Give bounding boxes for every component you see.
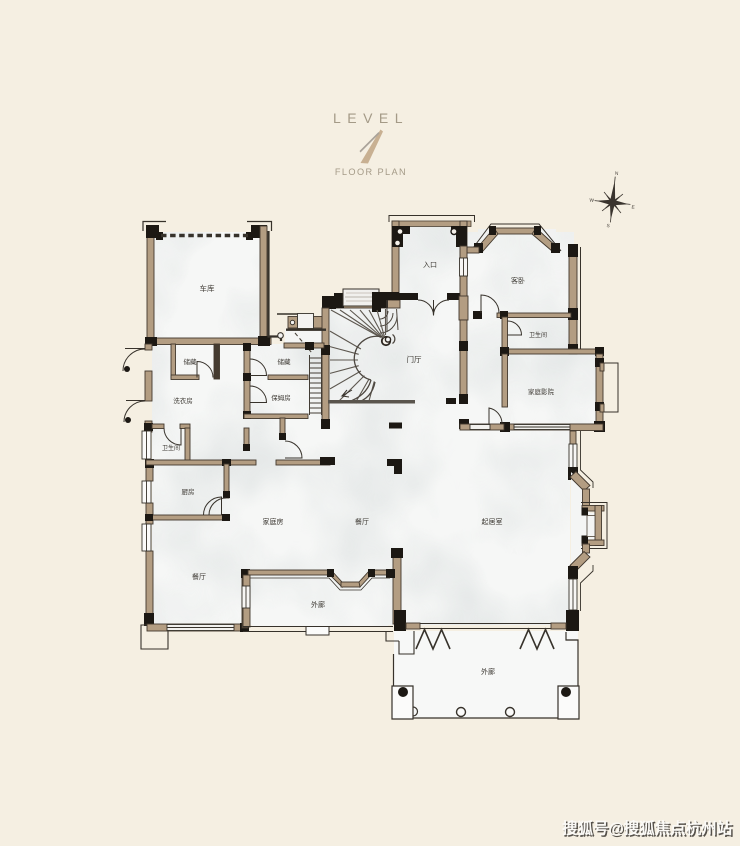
svg-text:S: S [606,223,610,229]
svg-text:卫生间: 卫生间 [162,444,180,452]
svg-text:餐厅: 餐厅 [355,517,369,526]
svg-text:车库: 车库 [200,283,215,293]
svg-text:储藏: 储藏 [278,357,292,366]
svg-text:入口: 入口 [423,261,437,269]
svg-text:搜狐号@搜狐焦点杭州站: 搜狐号@搜狐焦点杭州站 [562,819,733,838]
svg-text:门厅: 门厅 [407,355,422,364]
svg-text:洗衣房: 洗衣房 [173,396,193,405]
svg-text:餐厅: 餐厅 [192,572,206,581]
svg-text:外廊: 外廊 [481,667,495,676]
svg-text:卫生间: 卫生间 [529,331,547,339]
svg-text:厨房: 厨房 [182,487,195,496]
svg-text:起居室: 起居室 [482,517,503,526]
svg-text:LEVEL: LEVEL [333,110,409,126]
svg-text:储藏: 储藏 [184,357,198,366]
svg-text:保姆房: 保姆房 [271,393,291,402]
svg-text:客卧: 客卧 [511,276,525,285]
svg-text:外廊: 外廊 [311,600,325,609]
svg-text:家庭影院: 家庭影院 [528,387,555,396]
svg-text:家庭房: 家庭房 [263,517,284,526]
svg-text:E: E [631,205,635,211]
svg-text:FLOOR PLAN: FLOOR PLAN [335,167,407,177]
